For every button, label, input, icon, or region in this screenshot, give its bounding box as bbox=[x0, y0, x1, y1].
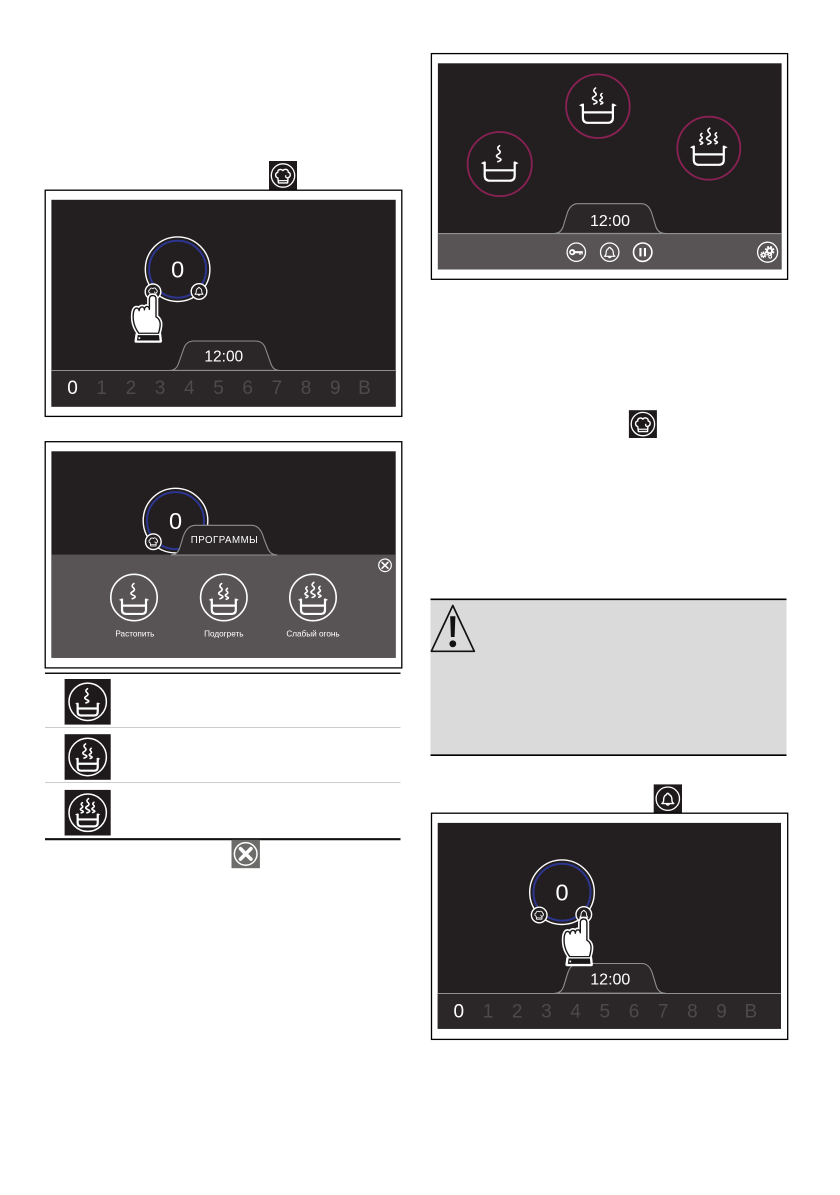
svg-text:8: 8 bbox=[301, 378, 312, 399]
svg-text:5: 5 bbox=[213, 378, 224, 399]
svg-text:6: 6 bbox=[629, 1002, 640, 1023]
svg-text:7: 7 bbox=[272, 378, 283, 399]
svg-text:9: 9 bbox=[330, 378, 341, 399]
svg-text:Подогреть: Подогреть bbox=[204, 630, 243, 639]
svg-text:B: B bbox=[744, 1002, 757, 1023]
svg-text:4: 4 bbox=[570, 1002, 581, 1023]
svg-text:5: 5 bbox=[600, 1002, 611, 1023]
svg-text:Растопить: Растопить bbox=[115, 630, 154, 639]
svg-text:7: 7 bbox=[658, 1002, 669, 1023]
svg-text:6: 6 bbox=[242, 378, 253, 399]
svg-text:0: 0 bbox=[454, 1002, 465, 1023]
svg-text:Слабый огонь: Слабый огонь bbox=[286, 630, 339, 639]
svg-text:1: 1 bbox=[483, 1002, 494, 1023]
svg-text:8: 8 bbox=[687, 1002, 698, 1023]
svg-text:4: 4 bbox=[184, 378, 195, 399]
svg-text:3: 3 bbox=[541, 1002, 552, 1023]
svg-text:ПРОГРАММЫ: ПРОГРАММЫ bbox=[191, 535, 258, 546]
svg-text:12:00: 12:00 bbox=[204, 349, 243, 366]
svg-text:3: 3 bbox=[155, 378, 166, 399]
svg-text:9: 9 bbox=[716, 1002, 727, 1023]
svg-text:2: 2 bbox=[126, 378, 137, 399]
svg-text:2: 2 bbox=[512, 1002, 523, 1023]
svg-text:0: 0 bbox=[67, 378, 78, 399]
svg-text:12:00: 12:00 bbox=[590, 213, 630, 230]
svg-text:1: 1 bbox=[96, 378, 107, 399]
svg-text:B: B bbox=[358, 378, 371, 399]
svg-text:12:00: 12:00 bbox=[590, 972, 630, 989]
